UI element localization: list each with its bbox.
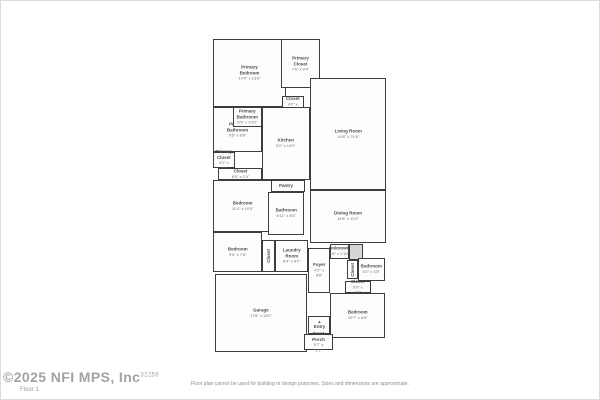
room-dims: 9'5" x 8'8" xyxy=(229,133,246,138)
room-dims: 6'4" x 6'2" xyxy=(283,259,300,264)
room-bedroom-2: Bedroom11'4" x 10'0" xyxy=(213,180,272,232)
room-name: Entry xyxy=(313,324,325,330)
room-dims: 4'2" x 8'8" xyxy=(313,268,325,278)
room-label: Bedroom11'4" x 10'0" xyxy=(232,200,254,211)
room-bathroom-3: Bathroom5'2" x 4'5" xyxy=(358,258,385,281)
room-name: Pantry xyxy=(279,183,293,189)
room-dims: 8'5" x 2'4" xyxy=(231,174,248,179)
room-dims: 17'8" x 15'0" xyxy=(250,313,272,318)
room-label: Bathroom5'2" x 4'5" xyxy=(361,264,382,275)
room-dims: 14'0" x 13'0" xyxy=(239,76,261,81)
room-laundry-room: Laundry Room6'4" x 6'2" xyxy=(275,240,308,272)
room-kitchen: Kitchen9'2" x 14'0" xyxy=(262,107,310,180)
room-name: Primary Closet xyxy=(291,55,310,67)
room-label: Foyer4'2" x 8'8" xyxy=(313,262,325,278)
room-dining-room: Dining Room14'8" x 10'2" xyxy=(310,190,386,243)
room-dims: 9'2" x 14'0" xyxy=(276,144,296,149)
room-label: Laundry Room6'4" x 6'2" xyxy=(283,248,301,265)
room-dims: 7'6" x 9'4" xyxy=(292,67,309,72)
room-foyer: Foyer4'2" x 8'8" xyxy=(308,248,330,293)
room-living-room: Living Room14'8" x 21'6" xyxy=(310,78,386,190)
room-label: Bathroom6'11" x 8'3" xyxy=(275,208,296,219)
room-front-porch: Front Porch5'7" x 3'1" xyxy=(304,334,333,350)
room-dims: 14'8" x 10'2" xyxy=(337,217,359,222)
room-primary-closet-2: Primary Closet4'1" x 3'0" xyxy=(213,152,235,168)
room-label: Pantry xyxy=(279,183,293,189)
room-garage: Garage17'8" x 15'0" xyxy=(215,274,307,352)
room-dims: 5'2" x 4'5" xyxy=(363,270,380,275)
room-name: Closet xyxy=(351,279,365,285)
room-unknown: Unknown3'8" x 2'10" xyxy=(330,244,349,259)
room-label: Garage17'8" x 15'0" xyxy=(250,307,272,318)
room-label: Primary Bathroom5'5" x 3'10" xyxy=(237,109,258,126)
room-name: Primary Closet xyxy=(216,149,233,161)
room-label: Primary Closet7'6" x 9'4" xyxy=(291,55,310,72)
room-label: Dining Room14'8" x 10'2" xyxy=(334,211,362,222)
room-label: Closet xyxy=(350,263,356,277)
room-primary-bathroom-wc: Primary Bathroom5'5" x 3'10" xyxy=(233,107,262,127)
room-name: Laundry Room xyxy=(283,248,301,260)
room-bedroom-3: Bedroom9'5" x 7'8" xyxy=(213,232,262,272)
floor-label: Floor 1 xyxy=(20,387,39,393)
room-label: Closet8'5" x 2'4" xyxy=(231,168,248,179)
room-bathroom-2: Bathroom6'11" x 8'3" xyxy=(268,192,304,235)
room-label: Living Room14'8" x 21'6" xyxy=(334,128,361,139)
room-dims: 11'4" x 10'0" xyxy=(232,206,254,211)
watermark-number: 32259 xyxy=(140,372,159,378)
room-name: Closet xyxy=(286,96,300,102)
floorplan: Primary Bedroom14'0" x 13'0"Primary Clos… xyxy=(0,0,600,400)
room-dims: 5'7" x 3'1" xyxy=(312,343,326,353)
room-dims: 3'8" x 2'10" xyxy=(330,252,350,257)
room-name: Closet xyxy=(350,263,356,277)
room-name: Primary Bedroom xyxy=(232,65,268,77)
room-closet-5: Closet5'0" x 2'4" xyxy=(345,281,371,293)
room-label: Bedroom10'7" x 8'8" xyxy=(348,310,368,321)
room-label: Kitchen9'2" x 14'0" xyxy=(276,138,296,149)
room-label: Front Porch5'7" x 3'1" xyxy=(312,331,326,353)
room-name: Primary Bathroom xyxy=(237,109,258,121)
room-dims: 10'7" x 8'8" xyxy=(348,316,368,321)
room-label: Primary Bedroom14'0" x 13'0" xyxy=(232,65,268,82)
room-dims: 9'5" x 7'8" xyxy=(229,252,246,257)
room-bedroom-4: Bedroom10'7" x 8'8" xyxy=(330,293,385,338)
disclaimer-text: Floor plan cannot be used for building o… xyxy=(0,381,600,387)
room-dims: 5'5" x 3'10" xyxy=(238,120,258,125)
room-pantry: Pantry xyxy=(267,180,305,192)
room-closet-3: Closet xyxy=(262,240,275,272)
room-linen-closet: Closet8'5" x 2'4" xyxy=(218,168,262,180)
room-dims: 14'8" x 21'6" xyxy=(337,134,359,139)
room-dims: 6'11" x 8'3" xyxy=(276,214,295,219)
room-primary-bedroom: Primary Bedroom14'0" x 13'0" xyxy=(213,39,286,107)
room-label: Bedroom9'5" x 7'8" xyxy=(228,246,248,257)
room-label: Unknown3'8" x 2'10" xyxy=(329,246,349,257)
room-name: Front Porch xyxy=(312,331,326,343)
room-name: Closet xyxy=(266,249,272,263)
room-closet-4: Closet xyxy=(347,260,358,279)
room-label: Closet xyxy=(266,249,272,263)
room-label: ▲Entry xyxy=(313,320,325,330)
